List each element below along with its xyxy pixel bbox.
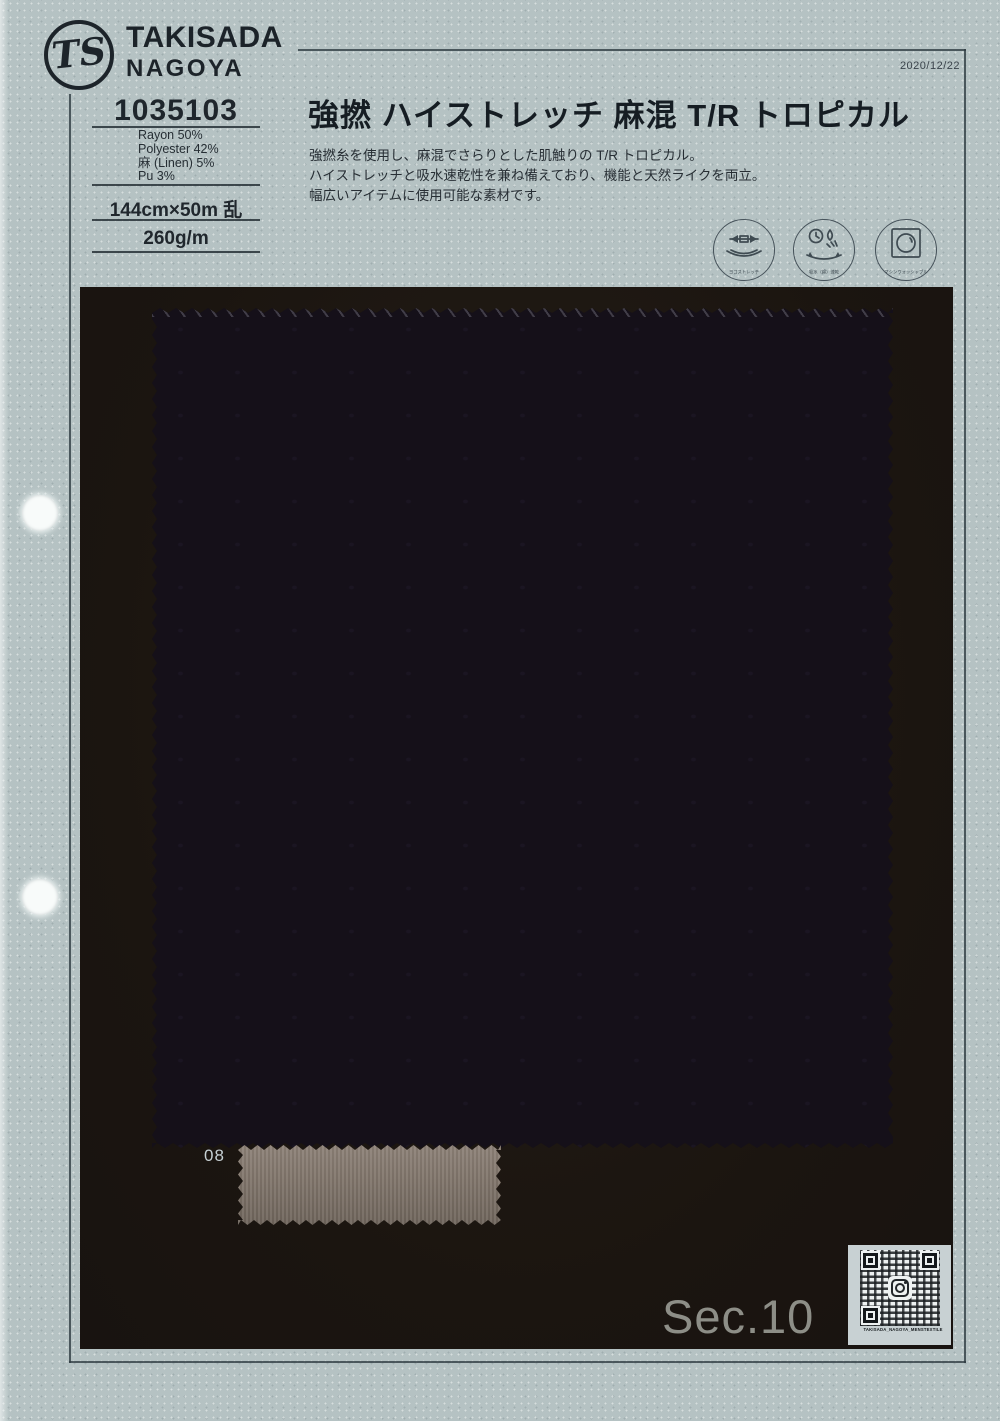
- brand-name: TAKISADA NAGOYA: [126, 23, 283, 81]
- frame-border-right: [964, 49, 966, 1363]
- frame-border-left: [69, 94, 71, 1363]
- instagram-icon: [888, 1276, 912, 1300]
- product-title: 強撚 ハイストレッチ 麻混 T/R トロピカル: [308, 90, 910, 135]
- fabric-sample-card: TS TAKISADA NAGOYA 2020/12/22 1035103 Ra…: [0, 0, 1000, 1421]
- punch-hole: [22, 879, 58, 915]
- color-number: 08: [204, 1146, 225, 1166]
- description-line: 強撚糸を使用し、麻混でさらりとした肌触りの T/R トロピカル。: [309, 146, 765, 166]
- icon-label: ヨコストレッチ: [715, 268, 773, 274]
- absorbent-quick-dry-icon: 吸水（綿）速乾: [793, 219, 855, 281]
- composition-item: Rayon 50%: [138, 129, 219, 143]
- product-description: 強撚糸を使用し、麻混でさらりとした肌触りの T/R トロピカル。 ハイストレッチ…: [309, 146, 765, 206]
- color-chip-swatch: [238, 1145, 501, 1225]
- qr-finder: [922, 1253, 937, 1268]
- icon-label: マシンウォッシャブル: [877, 268, 935, 274]
- frame-border-bottom: [69, 1361, 966, 1363]
- width-length: 144cm×50m 乱: [90, 195, 262, 222]
- description-line: 幅広いアイテムに使用可能な素材です。: [309, 186, 765, 206]
- qr-panel: TAKISADA_NAGOYA_MENSTEXTILE: [848, 1245, 951, 1345]
- description-line: ハイストレッチと吸水速乾性を兼ね備えており、機能と天然ライクを両立。: [309, 166, 765, 186]
- divider: [92, 184, 260, 186]
- icon-label: 吸水（綿）速乾: [795, 268, 853, 274]
- punch-hole: [22, 495, 58, 531]
- composition-item: 麻 (Linen) 5%: [138, 157, 219, 171]
- pinked-edge-highlight: [152, 308, 893, 317]
- swatch-mount-board: 08 Sec.10 TAKISADA_NAGOYA_MENSTEXTILE: [80, 287, 953, 1349]
- yoko-stretch-icon: ヨコストレッチ: [713, 219, 775, 281]
- logo-monogram: TS: [49, 28, 108, 77]
- machine-washable-icon: マシンウォッシャブル: [875, 219, 937, 281]
- divider: [92, 219, 260, 221]
- composition-list: Rayon 50% Polyester 42% 麻 (Linen) 5% Pu …: [138, 129, 219, 184]
- divider: [92, 251, 260, 253]
- qr-caption: TAKISADA_NAGOYA_MENSTEXTILE: [863, 1328, 935, 1332]
- takisada-logo-icon: TS: [44, 20, 114, 90]
- qr-finder: [863, 1253, 878, 1268]
- issue-date: 2020/12/22: [850, 60, 960, 72]
- frame-border-top: [298, 49, 966, 51]
- composition-item: Pu 3%: [138, 170, 219, 184]
- fabric-weight: 260g/m: [90, 228, 262, 250]
- section-label: Sec.10: [662, 1289, 814, 1344]
- composition-item: Polyester 42%: [138, 143, 219, 157]
- paper-edge-highlight: [0, 0, 9, 1421]
- fabric-swatch: [152, 308, 893, 1148]
- brand-name-line1: TAKISADA: [126, 23, 283, 53]
- qr-finder: [863, 1308, 878, 1323]
- product-number: 1035103: [90, 94, 262, 128]
- qr-code: [860, 1250, 940, 1326]
- brand-name-line2: NAGOYA: [126, 57, 283, 81]
